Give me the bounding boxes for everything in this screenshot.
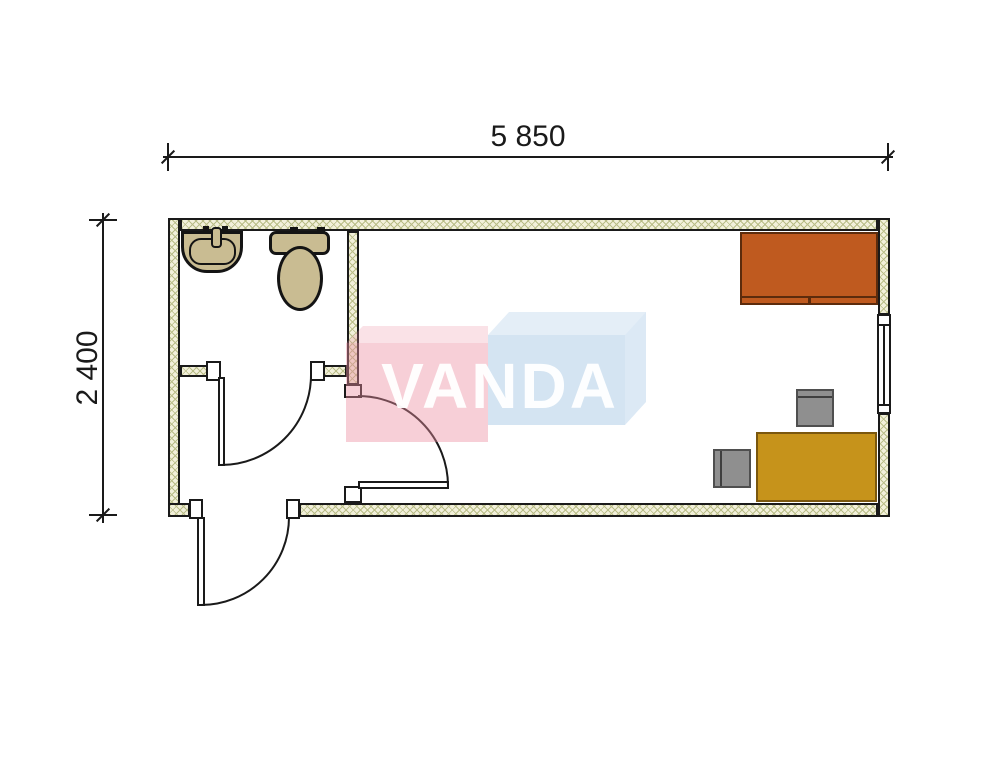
watermark-text: VANDA: [381, 350, 619, 422]
floor-plan-canvas: 5 850 2 400: [0, 0, 1000, 757]
vanda-watermark: VANDA: [0, 0, 1000, 757]
watermark-pink-top-face: [346, 326, 488, 343]
watermark-blue-top-face: [488, 312, 646, 335]
